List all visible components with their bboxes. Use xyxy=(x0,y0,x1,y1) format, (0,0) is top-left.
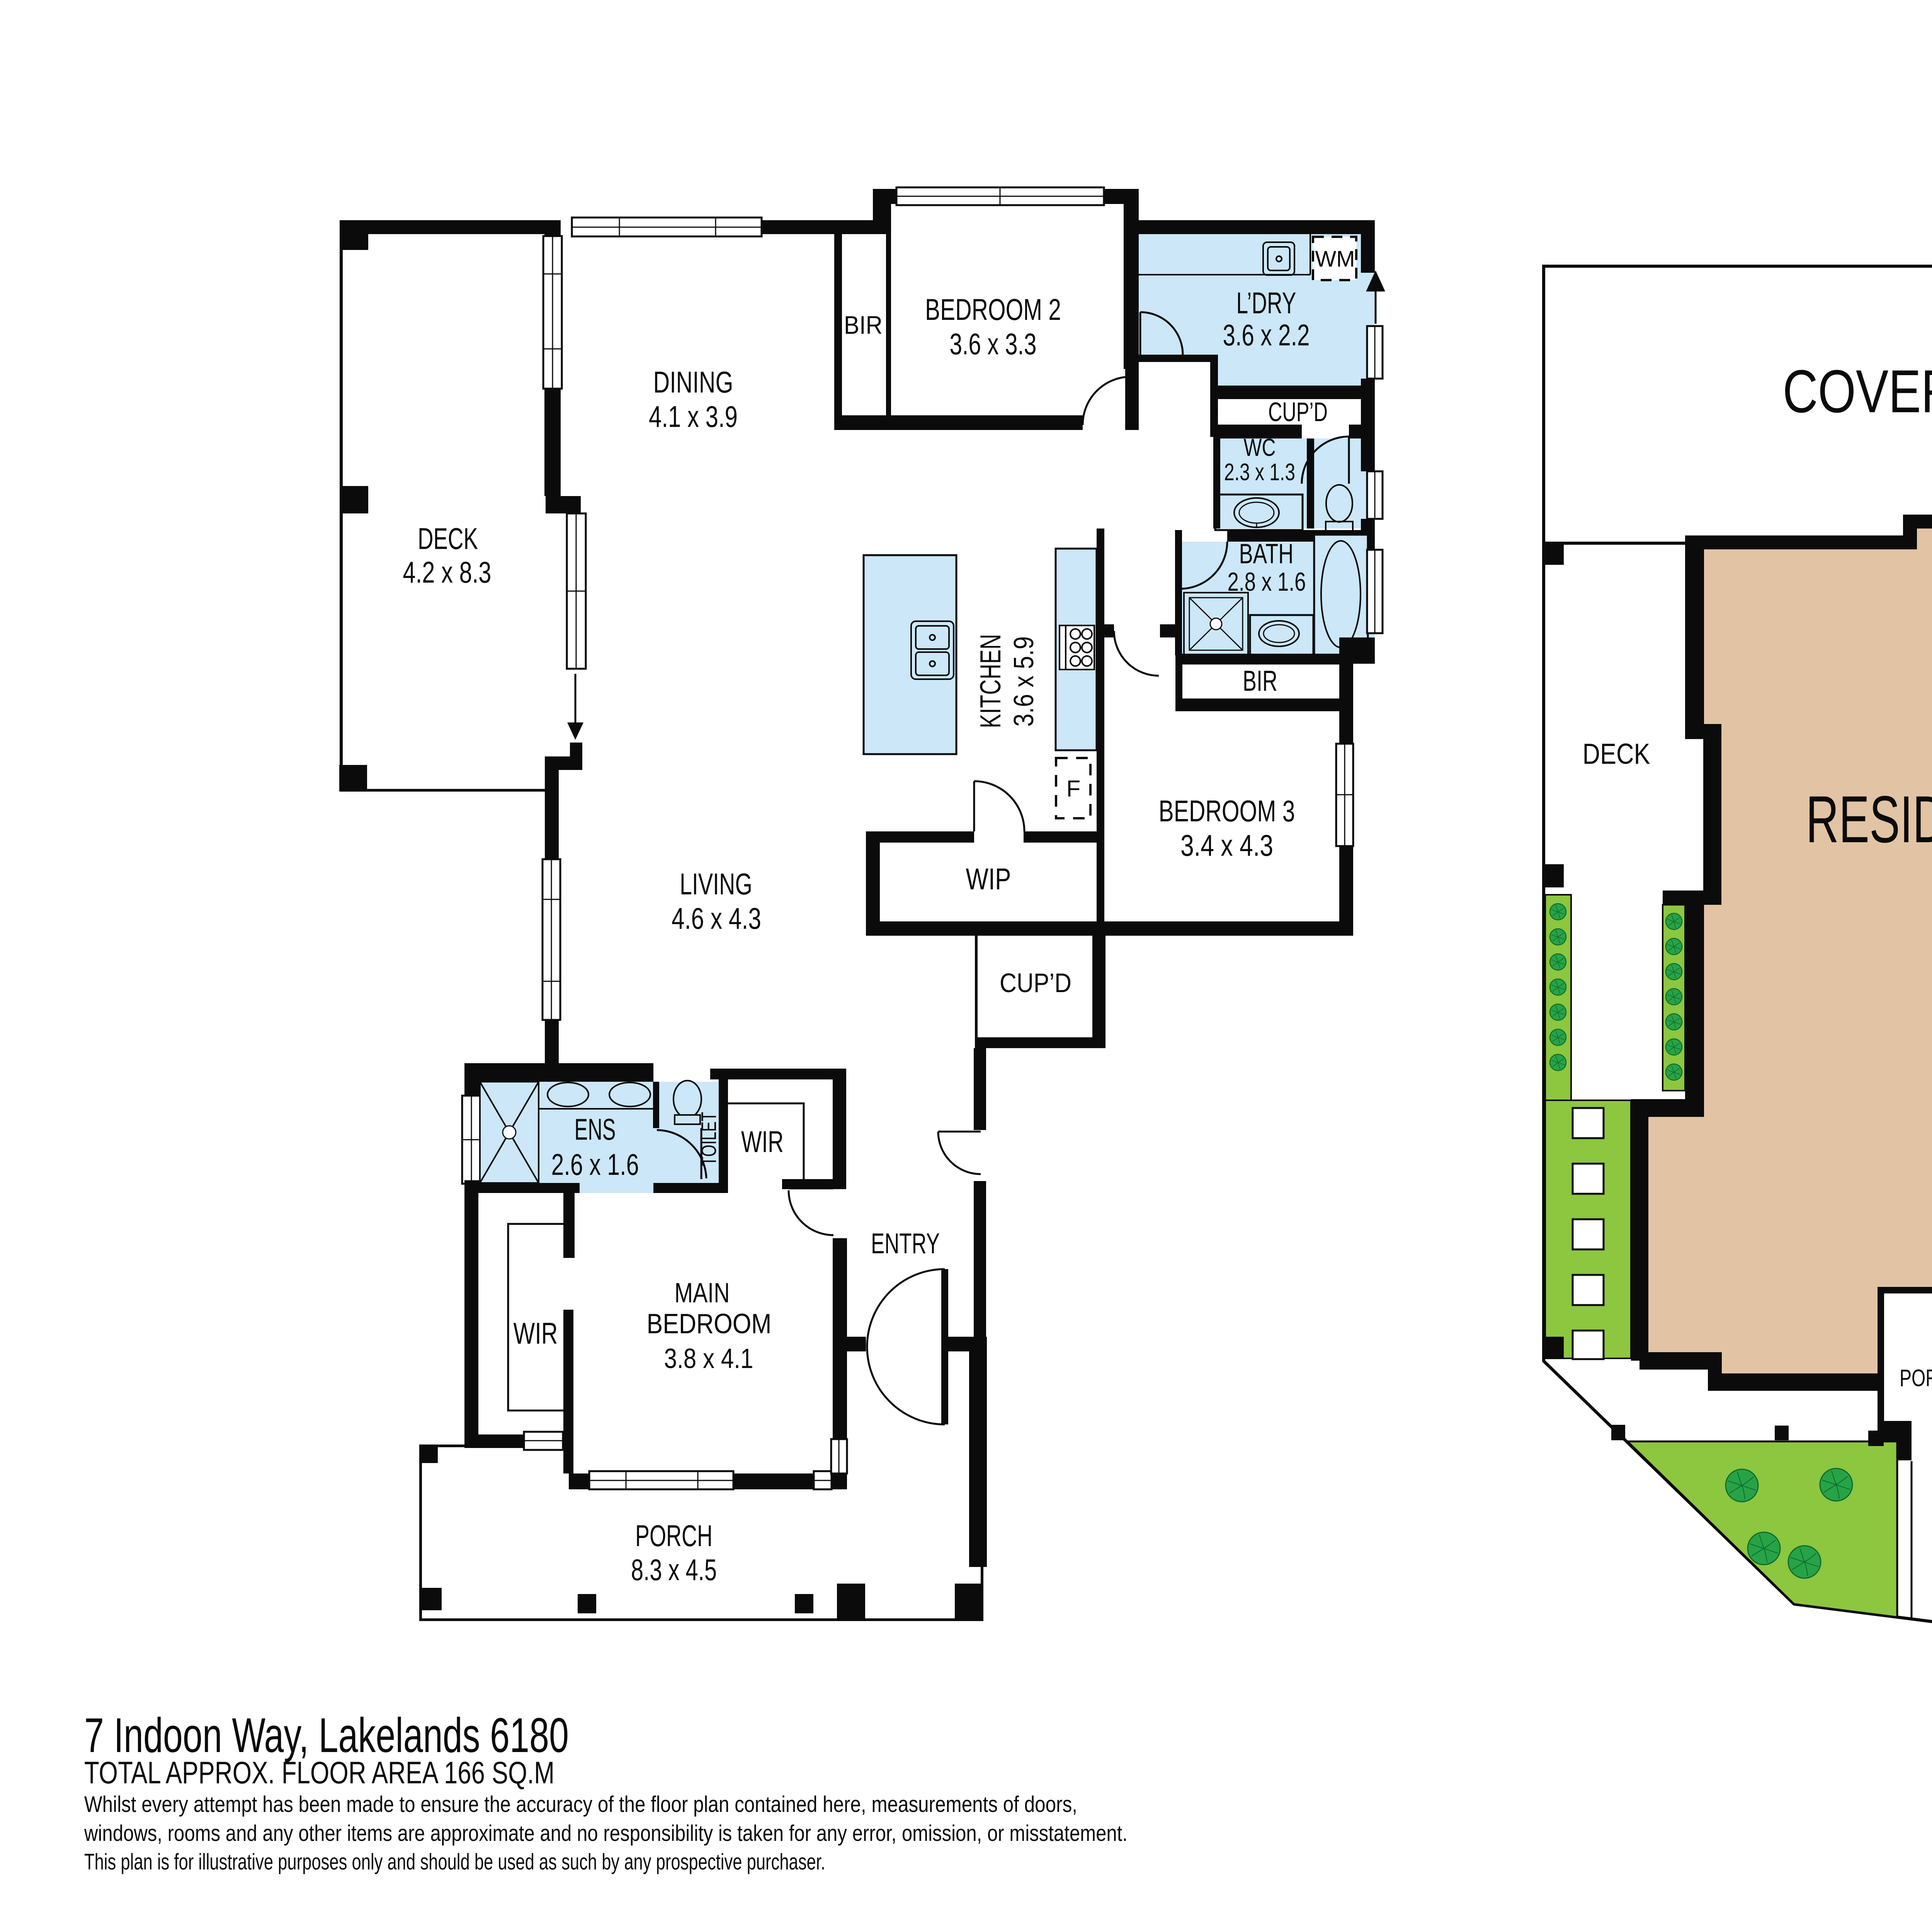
svg-text:WIR: WIR xyxy=(741,1125,784,1159)
svg-text:4.1 x 3.9: 4.1 x 3.9 xyxy=(649,399,738,433)
svg-text:LIVING: LIVING xyxy=(680,867,752,901)
svg-text:7 Indoon Way, Lakelands 6180: 7 Indoon Way, Lakelands 6180 xyxy=(84,1708,569,1762)
svg-text:WC: WC xyxy=(1244,433,1276,461)
svg-text:BEDROOM 3: BEDROOM 3 xyxy=(1159,794,1295,828)
svg-text:RESIDENCE: RESIDENCE xyxy=(1806,782,1932,857)
svg-text:8.3 x 4.5: 8.3 x 4.5 xyxy=(631,1553,717,1587)
svg-text:COVERED AREA: COVERED AREA xyxy=(1783,358,1932,425)
svg-text:BATH: BATH xyxy=(1239,539,1294,569)
svg-text:BIR: BIR xyxy=(844,311,883,339)
svg-text:PORCH: PORCH xyxy=(635,1519,713,1553)
svg-text:CUP’D: CUP’D xyxy=(1268,397,1328,427)
svg-text:WM: WM xyxy=(1315,246,1355,272)
svg-text:ENS: ENS xyxy=(575,1112,616,1146)
svg-text:3.6 x 3.3: 3.6 x 3.3 xyxy=(950,327,1037,361)
svg-text:BEDROOM: BEDROOM xyxy=(647,1309,772,1339)
svg-text:DECK: DECK xyxy=(418,522,478,556)
svg-text:L’DRY: L’DRY xyxy=(1236,286,1296,320)
svg-text:CUP’D: CUP’D xyxy=(1000,968,1071,998)
svg-text:DINING: DINING xyxy=(653,365,733,399)
svg-text:WIR: WIR xyxy=(514,1316,558,1350)
svg-text:3.6 x 5.9: 3.6 x 5.9 xyxy=(1009,636,1039,727)
svg-text:3.8 x 4.1: 3.8 x 4.1 xyxy=(664,1343,753,1374)
svg-text:2.3 x 1.3: 2.3 x 1.3 xyxy=(1224,459,1295,486)
svg-text:2.6 x 1.6: 2.6 x 1.6 xyxy=(551,1147,639,1181)
svg-text:This plan is for illustrative: This plan is for illustrative purposes o… xyxy=(84,1849,825,1875)
svg-text:BEDROOM 2: BEDROOM 2 xyxy=(925,292,1061,326)
svg-text:DECK: DECK xyxy=(1583,738,1650,770)
svg-text:PORCH: PORCH xyxy=(1900,1365,1932,1392)
svg-text:KITCHEN: KITCHEN xyxy=(974,634,1007,728)
svg-text:4.2 x 8.3: 4.2 x 8.3 xyxy=(403,555,492,589)
svg-text:4.6 x 4.3: 4.6 x 4.3 xyxy=(672,901,761,935)
svg-text:windows, rooms and any other i: windows, rooms and any other items are a… xyxy=(84,1821,1128,1846)
svg-text:BIR: BIR xyxy=(1243,664,1277,697)
svg-text:WIP: WIP xyxy=(966,862,1011,896)
svg-text:TOTAL APPROX. FLOOR AREA 166 S: TOTAL APPROX. FLOOR AREA 166 SQ.M xyxy=(84,1756,554,1790)
svg-text:TOILET: TOILET xyxy=(697,1112,721,1166)
svg-text:Whilst every attempt has been: Whilst every attempt has been made to en… xyxy=(84,1792,1077,1817)
svg-text:F: F xyxy=(1066,776,1081,802)
svg-text:3.4 x 4.3: 3.4 x 4.3 xyxy=(1180,828,1273,862)
svg-text:ENTRY: ENTRY xyxy=(871,1227,940,1259)
svg-text:MAIN: MAIN xyxy=(675,1278,730,1309)
svg-text:3.6 x 2.2: 3.6 x 2.2 xyxy=(1223,318,1310,352)
